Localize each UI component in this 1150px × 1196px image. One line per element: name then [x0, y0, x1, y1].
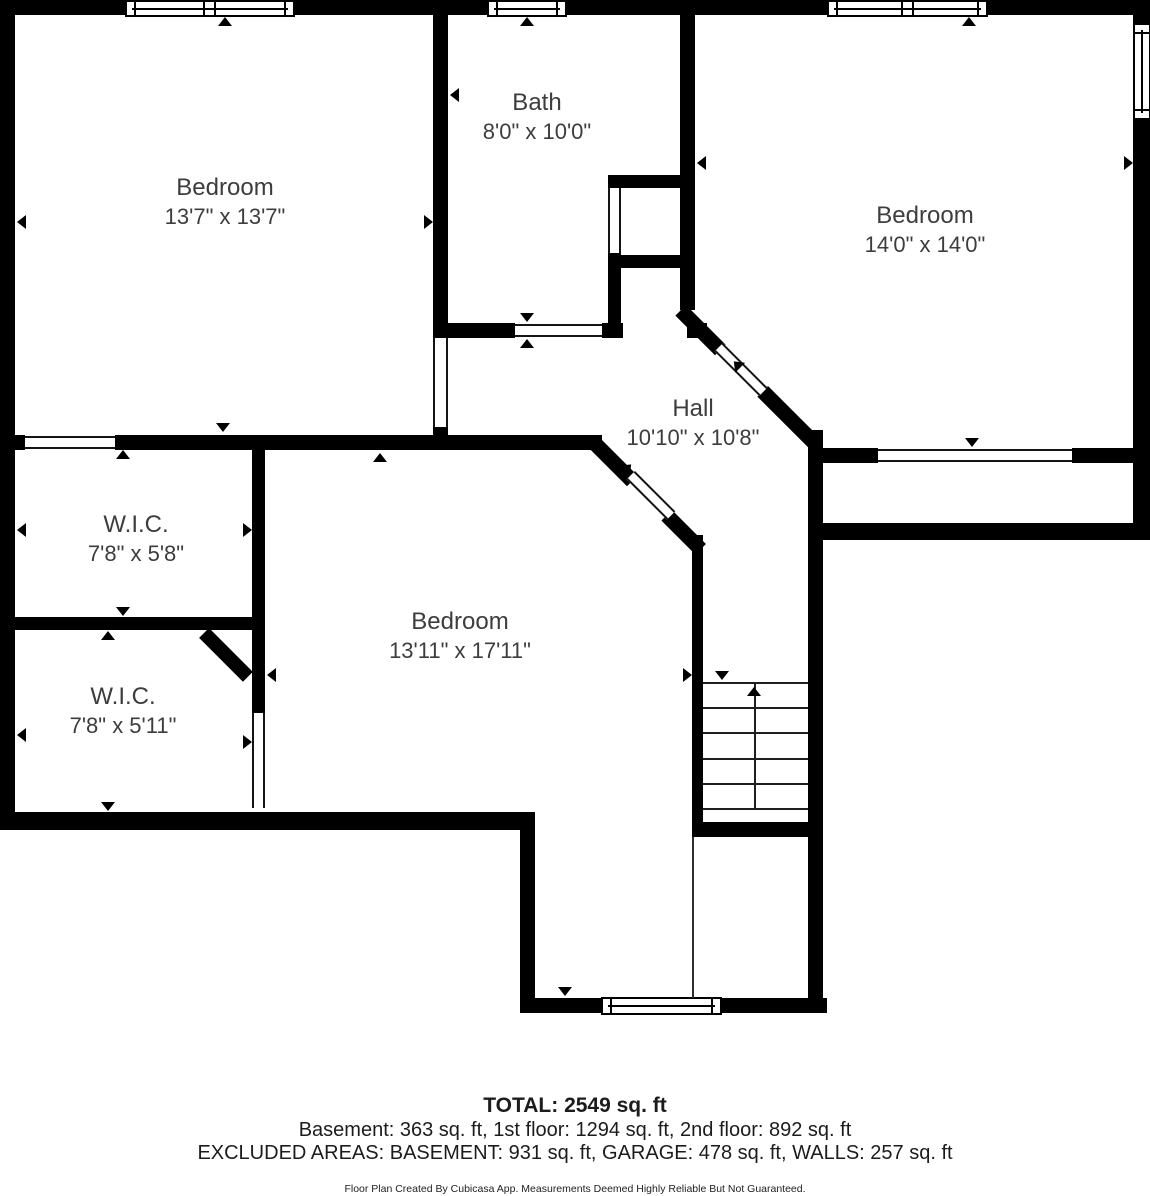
window-frame-line	[836, 2, 838, 15]
wall	[823, 448, 878, 463]
direction-marker-icon	[243, 735, 252, 749]
door-opening	[608, 188, 621, 253]
window-frame-line	[496, 2, 498, 15]
door-opening	[515, 324, 602, 337]
excluded-areas-text: EXCLUDED AREAS: BASEMENT: 931 sq. ft, GA…	[0, 1142, 1150, 1165]
direction-marker-icon	[101, 802, 115, 811]
room-name: Bedroom	[389, 607, 531, 636]
wall	[602, 323, 623, 338]
room-dimensions: 13'11" x 17'11"	[389, 636, 531, 665]
room-label: W.I.C.7'8" x 5'11"	[70, 682, 177, 740]
window-frame-line	[977, 2, 979, 15]
wall-diagonal	[199, 628, 253, 682]
door-opening-diagonal	[715, 343, 768, 396]
room-dimensions: 7'8" x 5'8"	[88, 539, 184, 568]
wall	[0, 0, 15, 830]
direction-marker-icon	[116, 450, 130, 459]
direction-marker-icon	[373, 453, 387, 462]
railing-line	[692, 837, 694, 998]
door-opening	[433, 338, 448, 427]
direction-marker-icon	[218, 17, 232, 26]
direction-marker-icon	[424, 215, 433, 229]
direction-marker-icon	[520, 17, 534, 26]
window	[601, 997, 722, 1015]
wall	[520, 830, 535, 1013]
direction-marker-icon	[683, 668, 692, 682]
wall	[823, 523, 1150, 540]
window-frame-line	[608, 1005, 715, 1007]
window-frame-line	[134, 2, 136, 15]
window-frame-line	[1141, 30, 1143, 113]
room-name: Hall	[627, 394, 760, 423]
direction-marker-icon	[17, 728, 26, 742]
floor-plan-page: Bedroom13'7" x 13'7"Bath8'0" x 10'0"Bedr…	[0, 0, 1150, 1196]
window-frame-line	[1135, 109, 1149, 111]
room-dimensions: 8'0" x 10'0"	[483, 117, 591, 146]
window-frame-line	[203, 2, 205, 15]
room-label: Bath8'0" x 10'0"	[483, 88, 591, 146]
window	[487, 0, 567, 17]
wall-diagonal	[757, 386, 823, 452]
room-label: Bedroom13'11" x 17'11"	[389, 607, 531, 665]
direction-marker-icon	[962, 17, 976, 26]
window-frame-line	[132, 8, 288, 10]
direction-marker-icon	[1124, 156, 1133, 170]
stair-direction-line	[754, 682, 756, 808]
floor-areas-text: Basement: 363 sq. ft, 1st floor: 1294 sq…	[0, 1119, 1150, 1142]
room-dimensions: 13'7" x 13'7"	[165, 202, 286, 231]
window-frame-line	[284, 2, 286, 15]
room-label: Hall10'10" x 10'8"	[627, 394, 760, 452]
room-name: W.I.C.	[70, 682, 177, 711]
direction-marker-icon	[520, 313, 534, 322]
wall	[15, 435, 25, 450]
direction-marker-icon	[101, 631, 115, 640]
wall	[433, 323, 515, 338]
window-frame-line	[901, 2, 903, 15]
room-label: W.I.C.7'8" x 5'8"	[88, 510, 184, 568]
room-name: Bath	[483, 88, 591, 117]
window-frame-line	[834, 8, 981, 10]
door-opening	[252, 713, 265, 808]
window-frame-line	[610, 999, 612, 1013]
direction-marker-icon	[116, 607, 130, 616]
room-name: Bedroom	[165, 173, 286, 202]
direction-marker-icon	[267, 668, 276, 682]
direction-marker-icon	[697, 156, 706, 170]
wall	[115, 435, 602, 450]
window	[125, 0, 295, 17]
wall	[1072, 448, 1133, 463]
window-frame-line	[912, 2, 914, 15]
floor-plan: Bedroom13'7" x 13'7"Bath8'0" x 10'0"Bedr…	[0, 0, 1150, 1013]
total-area-text: TOTAL: 2549 sq. ft	[0, 1094, 1150, 1118]
wall	[608, 175, 695, 188]
window-frame-line	[214, 2, 216, 15]
room-label: Bedroom14'0" x 14'0"	[865, 201, 986, 259]
direction-marker-icon	[216, 423, 230, 432]
room-dimensions: 10'10" x 10'8"	[627, 423, 760, 452]
direction-marker-icon	[520, 339, 534, 348]
room-dimensions: 7'8" x 5'11"	[70, 711, 177, 740]
wall	[808, 430, 823, 1013]
room-label: Bedroom13'7" x 13'7"	[165, 173, 286, 231]
stair-up-arrow-icon	[747, 687, 761, 696]
wall	[692, 535, 703, 823]
room-dimensions: 14'0" x 14'0"	[865, 230, 986, 259]
door-opening	[878, 449, 1072, 462]
wall	[433, 15, 448, 338]
wall	[252, 448, 265, 713]
direction-marker-icon	[243, 523, 252, 537]
window	[827, 0, 988, 17]
direction-marker-icon	[558, 987, 572, 996]
direction-marker-icon	[17, 215, 26, 229]
door-opening	[25, 436, 115, 449]
direction-marker-icon	[715, 671, 729, 680]
window-frame-line	[556, 2, 558, 15]
wall	[15, 617, 265, 630]
window-frame-line	[711, 999, 713, 1013]
window	[1133, 23, 1150, 120]
room-name: Bedroom	[865, 201, 986, 230]
room-name: W.I.C.	[88, 510, 184, 539]
direction-marker-icon	[450, 88, 459, 102]
wall	[692, 822, 823, 837]
disclaimer-text: Floor Plan Created By Cubicasa App. Meas…	[0, 1183, 1150, 1195]
window-frame-line	[494, 8, 560, 10]
direction-marker-icon	[17, 523, 26, 537]
direction-marker-icon	[965, 438, 979, 447]
wall	[608, 255, 695, 268]
stair-tread	[703, 808, 808, 810]
window-frame-line	[1135, 32, 1149, 34]
wall	[0, 812, 535, 830]
door-opening-diagonal	[627, 471, 676, 520]
